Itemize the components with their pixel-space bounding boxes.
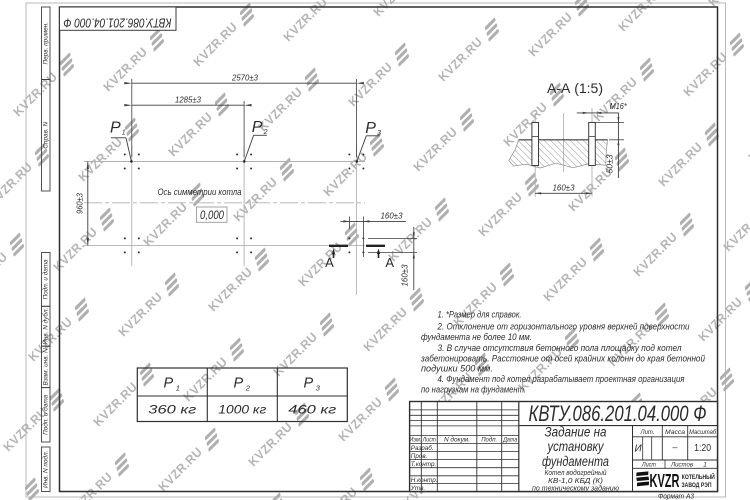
svg-text:160±3: 160±3 (553, 182, 575, 192)
svg-text:Масса: Масса (665, 429, 685, 436)
svg-text:460 кг: 460 кг (288, 403, 336, 417)
svg-text:1285±3: 1285±3 (175, 95, 201, 105)
svg-text:P: P (233, 376, 243, 392)
svg-text:4. Фундамент под котел разраб: 4. Фундамент под котел разрабатывает про… (438, 374, 685, 384)
svg-text:установку: установку (547, 439, 605, 454)
svg-text:160±3: 160±3 (400, 264, 410, 286)
svg-text:Лит.: Лит. (640, 429, 655, 436)
svg-text:0,000: 0,000 (200, 210, 225, 222)
svg-text:3. В случае отсутствия бетонн: 3. В случае отсутствия бетонного пола пл… (438, 343, 682, 353)
svg-text:P: P (303, 376, 313, 392)
svg-text:P: P (252, 119, 263, 136)
svg-text:2: 2 (263, 129, 268, 136)
svg-text:50±3: 50±3 (606, 154, 615, 173)
svg-text:Утв.: Утв. (410, 485, 425, 492)
svg-text:по техническому заданию: по техническому заданию (532, 484, 619, 493)
svg-text:1: 1 (703, 462, 707, 469)
svg-text:1: 1 (176, 384, 180, 393)
svg-text:А: А (385, 255, 394, 270)
svg-text:P: P (110, 120, 121, 137)
svg-text:Лист: Лист (422, 437, 436, 444)
svg-text:Подп. и дата: Подп. и дата (41, 259, 49, 299)
svg-text:Т.контр.: Т.контр. (411, 461, 436, 468)
svg-text:Н.контр.: Н.контр. (411, 477, 438, 484)
svg-text:Дата: Дата (502, 437, 517, 444)
svg-text:1000 кг: 1000 кг (218, 403, 266, 417)
svg-text:ЗАВОД РЭП: ЗАВОД РЭП (682, 482, 712, 489)
svg-text:Перв. примен.: Перв. примен. (42, 22, 49, 64)
svg-text:Разраб.: Разраб. (411, 444, 434, 452)
svg-text:160±3: 160±3 (381, 211, 403, 221)
svg-text:Пров.: Пров. (411, 453, 428, 460)
svg-text:Формат А3: Формат А3 (658, 492, 694, 500)
svg-text:–: – (672, 442, 677, 452)
svg-text:Ось симметрии котла: Ось симметрии котла (158, 187, 242, 197)
svg-text:1: 1 (122, 129, 126, 136)
svg-text:КВТУ.086.201.04.000 Ф: КВТУ.086.201.04.000 Ф (64, 15, 172, 30)
svg-text:забетонировать. Расстояние от: забетонировать. Расстояние от осей крайн… (420, 353, 705, 363)
svg-text:P: P (365, 120, 376, 137)
svg-text:Листов: Листов (670, 462, 693, 469)
svg-text:Инв. N подл.: Инв. N подл. (41, 451, 49, 488)
svg-text:1:20: 1:20 (694, 442, 711, 454)
svg-text:Инв. N дубл.: Инв. N дубл. (41, 308, 49, 345)
svg-text:А: А (325, 255, 334, 270)
svg-text:2570±3: 2570±3 (231, 73, 258, 83)
svg-text:И: И (635, 444, 643, 455)
svg-text:P: P (163, 376, 173, 392)
svg-text:Масштаб: Масштаб (689, 428, 717, 436)
svg-text:Справ. N: Справ. N (42, 121, 49, 148)
svg-text:Взам. инв. N: Взам. инв. N (42, 348, 49, 386)
svg-text:фундамента: фундамента (542, 454, 609, 469)
svg-text:Задание на: Задание на (545, 425, 607, 440)
svg-text:по нагрузкам на фундамент.: по нагрузкам на фундамент. (421, 384, 526, 394)
svg-text:Лист: Лист (641, 462, 656, 469)
svg-text:Подп.: Подп. (481, 436, 497, 444)
svg-text:960±3: 960±3 (76, 193, 85, 214)
svg-text:КОТЕЛЬНЫЙ: КОТЕЛЬНЫЙ (682, 473, 715, 481)
svg-text:KVZR: KVZR (650, 470, 680, 491)
svg-text:N докум.: N докум. (444, 436, 470, 444)
svg-text:Подп. и дата: Подп. и дата (41, 394, 49, 434)
svg-text:360 кг: 360 кг (148, 403, 196, 417)
svg-text:подушки 500 мм.: подушки 500 мм. (421, 364, 493, 374)
svg-text:КВТУ.086.201.04.000 Ф: КВТУ.086.201.04.000 Ф (529, 401, 707, 426)
svg-text:2. Отклонение от горизонтальн: 2. Отклонение от горизонтального уровня … (437, 322, 690, 332)
svg-text:фундамента не более 10 мм.: фундамента не более 10 мм. (421, 332, 532, 342)
svg-text:2: 2 (245, 384, 251, 393)
svg-text:Изм.: Изм. (409, 437, 421, 444)
svg-text:М16*: М16* (610, 102, 628, 111)
svg-text:1. *Размер для справок.: 1. *Размер для справок. (438, 309, 522, 319)
svg-text:А-А (1:5): А-А (1:5) (547, 81, 603, 96)
